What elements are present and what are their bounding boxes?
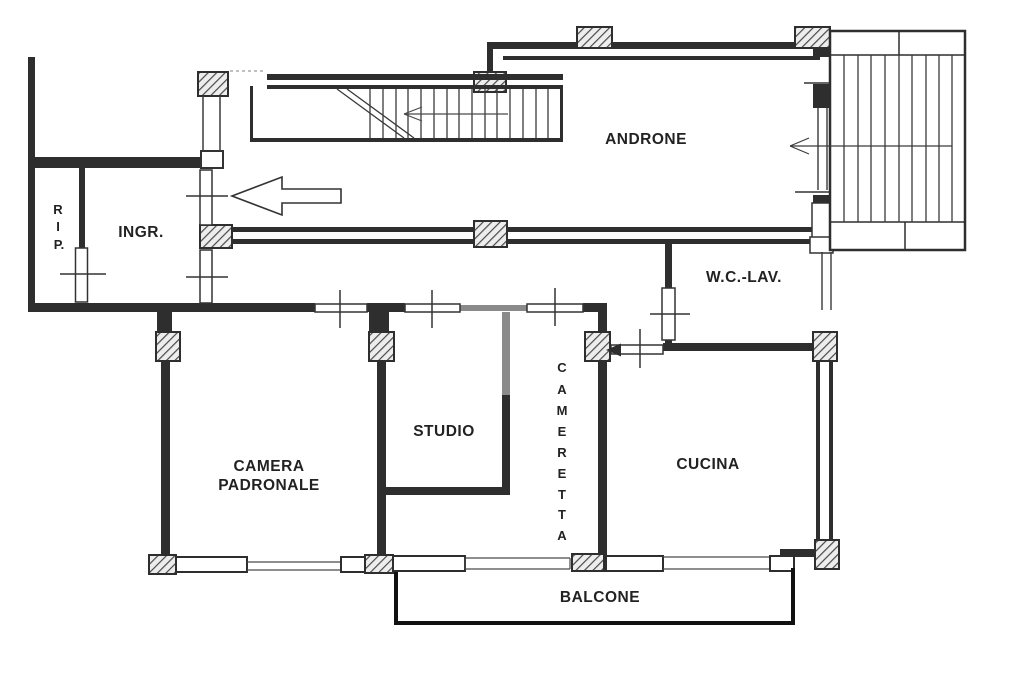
- wall-studio-right-upper: [502, 312, 510, 395]
- pillar-androne-top-2: [795, 27, 830, 48]
- wall-camera-left: [161, 361, 170, 557]
- label-studio: STUDIO: [413, 423, 475, 440]
- pillar-bottom-mid: [365, 555, 393, 573]
- label-cameretta: C A M E R E T T A: [557, 360, 568, 543]
- label-camera-line1: CAMERA: [233, 458, 304, 475]
- wall-rooms-top-b: [367, 303, 405, 312]
- stair-upper-left-edge: [250, 86, 253, 142]
- door-ingr-upper: [200, 170, 212, 225]
- label-ingr: INGR.: [118, 224, 164, 241]
- wall-androne-top-jog: [487, 42, 493, 76]
- floor-plan-page: ANDRONE INGR. W.C.-LAV. CAMERA PADRONALE…: [0, 0, 1024, 682]
- svg-text:E: E: [558, 466, 567, 481]
- label-balcone: BALCONE: [560, 589, 640, 606]
- svg-text:M: M: [557, 403, 568, 418]
- wall-rooms-top-a: [28, 303, 315, 312]
- wall-studio-right-lower: [502, 395, 510, 490]
- wall-wc-bottom: [663, 343, 815, 351]
- pillar-camera-left: [156, 332, 180, 361]
- pillar-ingr-mid: [200, 225, 232, 248]
- pier-ingr-top: [201, 151, 223, 168]
- pillar-corridor: [474, 221, 507, 247]
- label-wc-lav: W.C.-LAV.: [706, 269, 782, 286]
- svg-text:R: R: [557, 445, 567, 460]
- svg-text:T: T: [558, 487, 566, 502]
- wall-corridor-bottom-line: [232, 239, 813, 244]
- svg-text:I: I: [56, 219, 60, 234]
- stair-main-outline: [830, 31, 965, 250]
- svg-text:R: R: [53, 202, 63, 217]
- pillar-corner-sw: [149, 555, 176, 574]
- wall-camera-left-stub: [157, 312, 172, 333]
- label-androne: ANDRONE: [605, 131, 687, 148]
- wall-stair-left-c: [813, 195, 830, 203]
- label-cucina: CUCINA: [676, 456, 739, 473]
- wall-cameretta-right: [598, 361, 607, 558]
- svg-text:P.: P.: [54, 237, 65, 252]
- pillar-cameretta: [585, 332, 610, 361]
- wall-androne-top-outer: [487, 42, 832, 49]
- svg-text:T: T: [558, 507, 566, 522]
- wall-cucina-right-outer: [816, 361, 820, 541]
- stair-upper-bottom-edge: [250, 138, 563, 142]
- stair-upper-right-edge: [560, 89, 563, 142]
- wall-androne-top-inner: [503, 56, 820, 60]
- floor-plan-drawing: ANDRONE INGR. W.C.-LAV. CAMERA PADRONALE…: [0, 0, 1024, 682]
- wall-cucina-right-inner: [829, 361, 833, 541]
- wall-rip-divider: [79, 168, 85, 248]
- wall-studio-left-stub: [369, 312, 389, 333]
- wall-wc-left: [665, 241, 672, 288]
- svg-text:E: E: [558, 424, 567, 439]
- wall-left-exterior: [28, 57, 35, 310]
- stair-upper-band-bottom: [267, 85, 563, 89]
- window-cucina-1: [606, 556, 663, 571]
- door-camera: [315, 304, 367, 312]
- wall-rip-top: [28, 157, 210, 168]
- svg-text:A: A: [557, 528, 567, 543]
- wall-studio-left: [377, 361, 386, 557]
- stair-upper-band-top: [267, 74, 563, 80]
- pillar-corner-se: [815, 540, 839, 569]
- pillar-entry-top: [198, 72, 228, 96]
- door-rip: [76, 248, 88, 302]
- pillar-androne-top-1: [577, 27, 612, 48]
- label-camera-line2: PADRONALE: [218, 477, 320, 494]
- wall-cameretta-right-stub: [598, 312, 607, 333]
- wall-rooms-top-c: [460, 305, 527, 311]
- pillar-right-wall: [813, 332, 837, 361]
- pillar-studio-left: [369, 332, 394, 361]
- wall-studio-bottom: [386, 487, 510, 495]
- pillar-bottom-cameretta: [572, 554, 604, 571]
- pier-bottom-2: [770, 556, 794, 571]
- svg-text:C: C: [557, 360, 567, 375]
- wall-stair-left-b: [813, 84, 830, 108]
- window-camera: [176, 557, 247, 572]
- wall-corridor-top-line: [232, 227, 813, 232]
- pier-bottom-1: [341, 557, 365, 572]
- wall-rooms-top-d: [583, 303, 607, 312]
- window-studio: [393, 556, 465, 571]
- svg-text:A: A: [557, 382, 567, 397]
